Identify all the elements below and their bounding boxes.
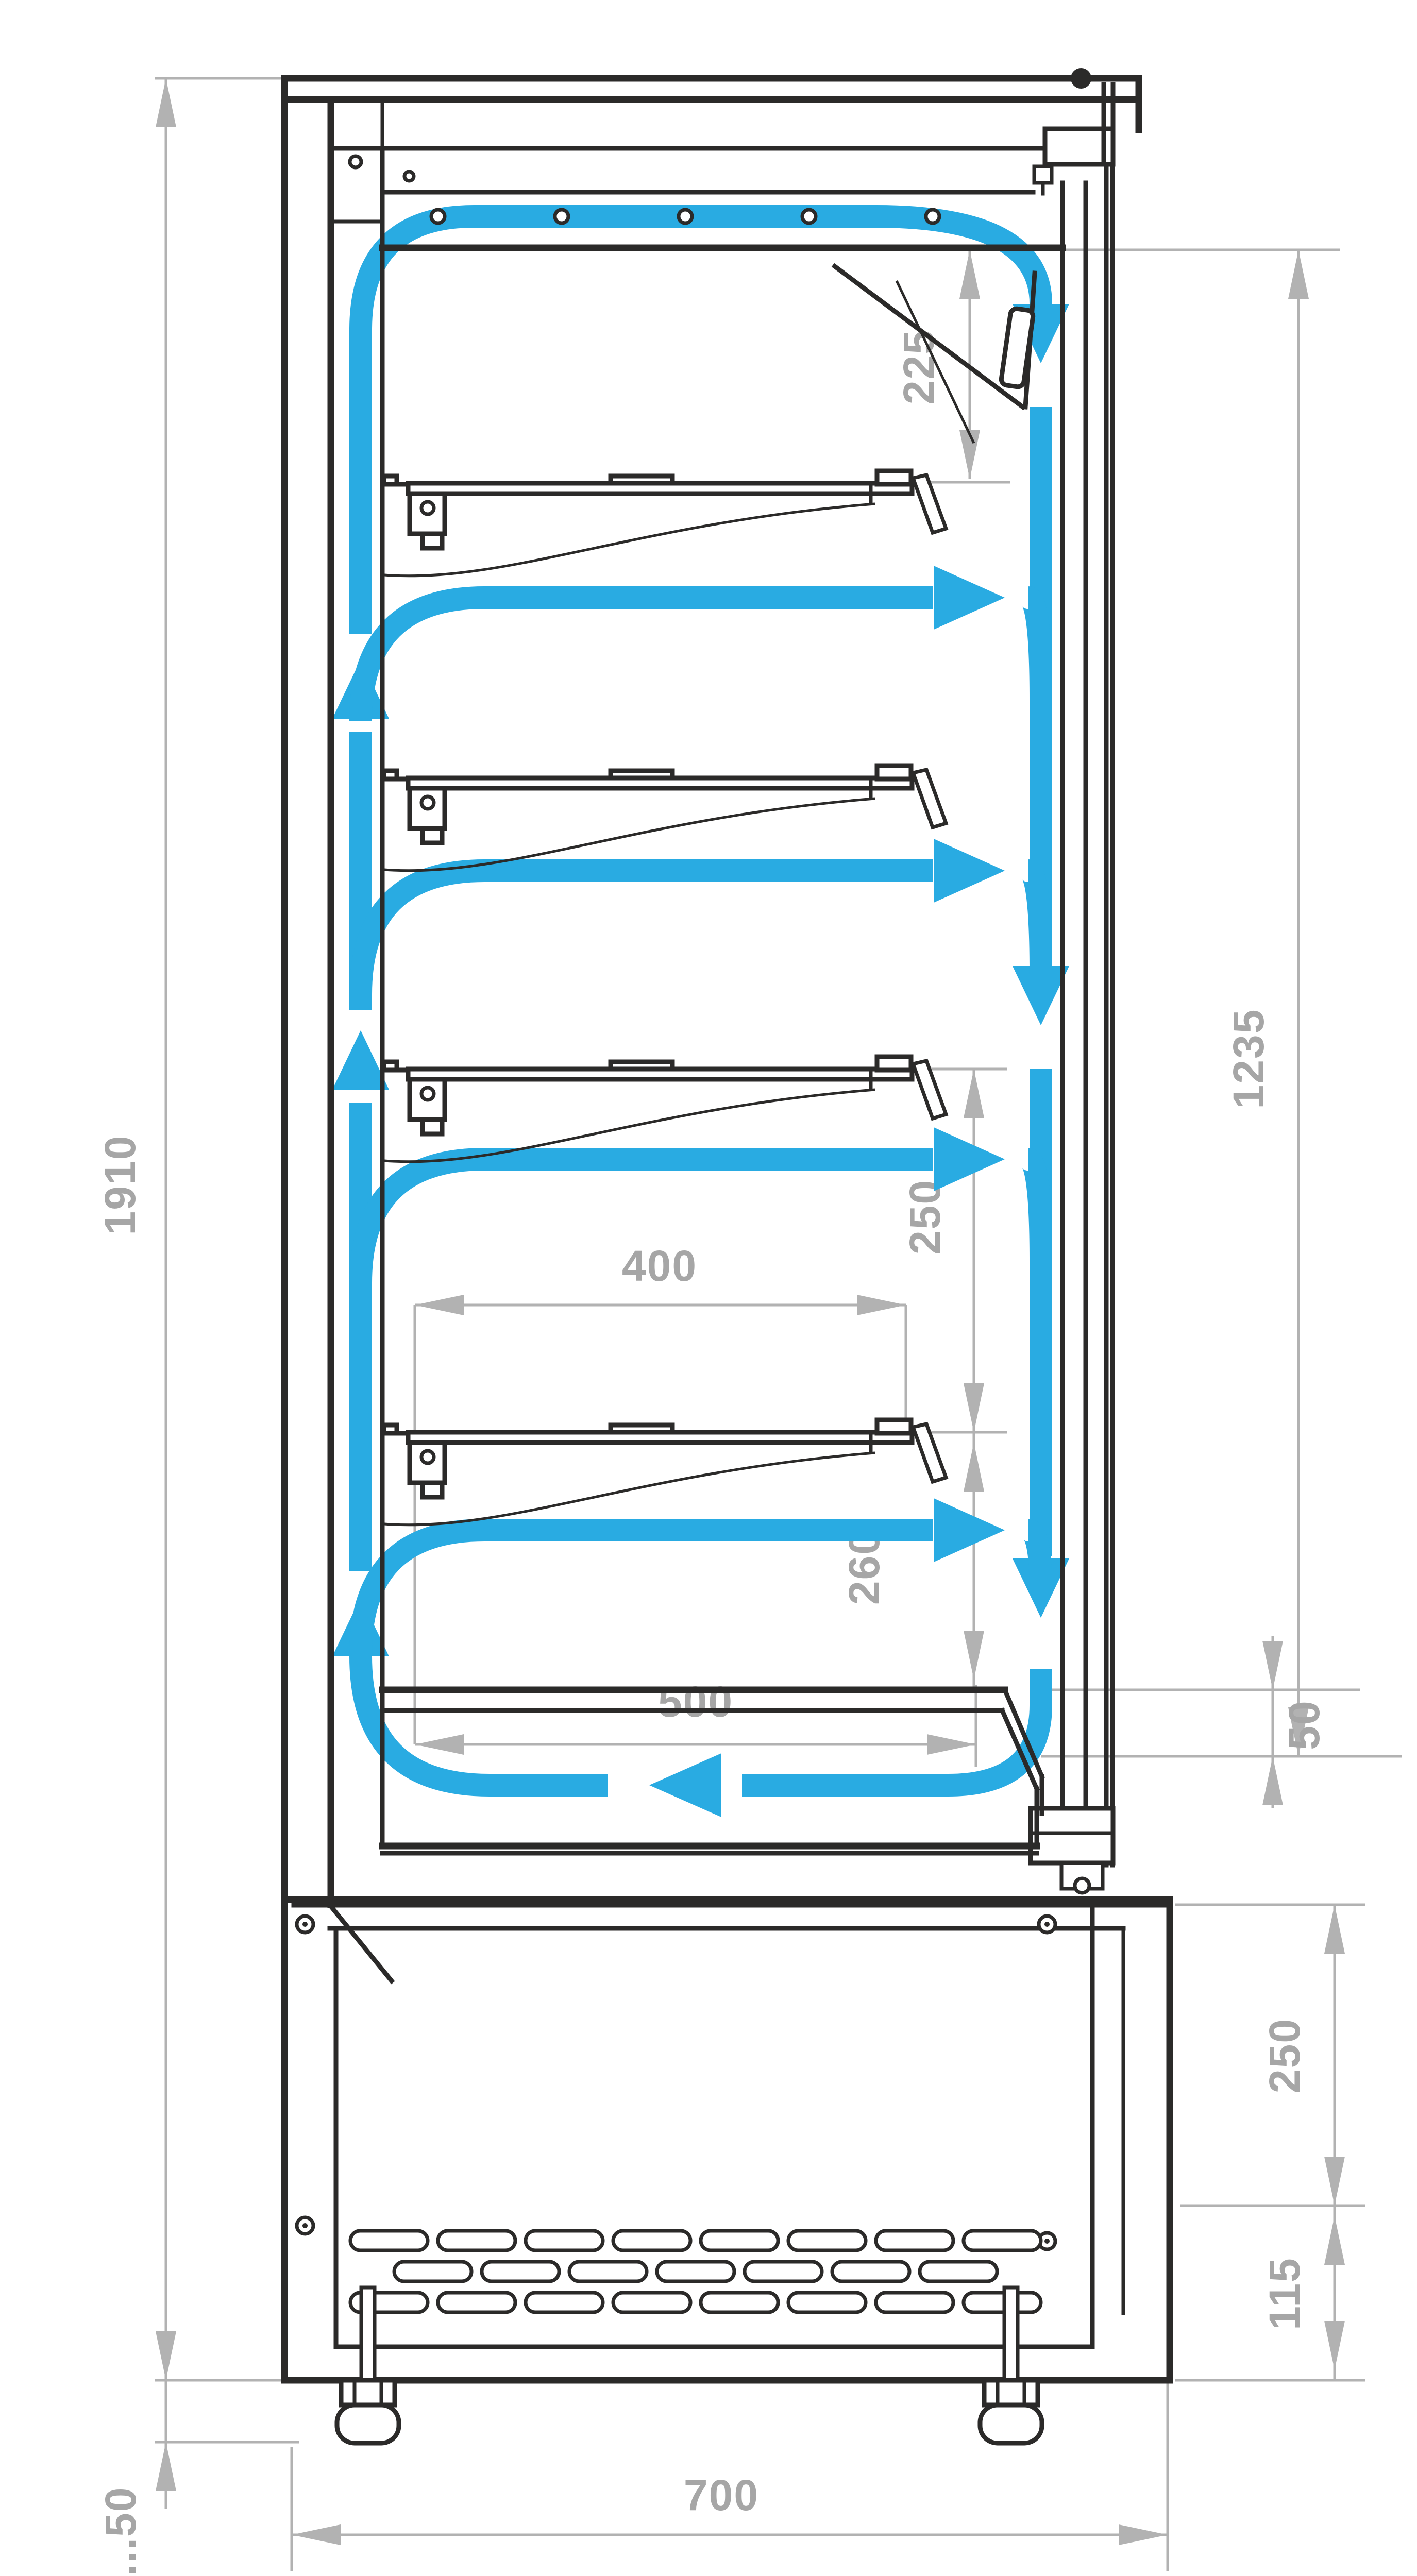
shelf-2 <box>384 766 946 871</box>
screw-icon <box>297 1916 313 1933</box>
shelf-4 <box>384 1420 946 1525</box>
dim-inlet-gap-label: 50 <box>1280 1700 1328 1750</box>
return-airflow-band <box>361 1656 608 1785</box>
screw-icon <box>297 2217 313 2234</box>
machine-base <box>284 1900 1170 2443</box>
airflow-arrows <box>332 216 1069 1817</box>
dim-foot-zone-label: 115 <box>1260 2257 1309 2330</box>
shelf-airflow-2 <box>361 839 1041 994</box>
door-top-frame <box>1034 68 1113 194</box>
dim-deck-depth-label: 500 <box>658 1677 733 1726</box>
dim-overall-depth-label: 700 <box>684 2471 759 2519</box>
dim-overall-height-label: 1910 <box>96 1135 144 1235</box>
right-arrow-icon <box>934 1127 1005 1191</box>
right-arrow-icon <box>934 839 1005 903</box>
technical-diagram-page: 1910 30...50 700 225 1235 50 <box>0 0 1417 2576</box>
dim-base-height-label: 250 <box>1260 2018 1309 2093</box>
door-bottom-frame <box>1031 1808 1113 1863</box>
shelf-3 <box>384 1057 946 1162</box>
right-arrow-icon <box>934 566 1005 630</box>
vent-grille <box>350 2231 1041 2312</box>
shelf-1 <box>384 471 946 576</box>
left-arrow-icon <box>649 1753 721 1817</box>
right-arrow-icon <box>934 1498 1005 1562</box>
dim-shelf-gap-upper-label: 250 <box>901 1179 949 1255</box>
cabinet-cross-section-diagram: 1910 30...50 700 225 1235 50 <box>0 0 1417 2576</box>
dim-door-zone-label: 1235 <box>1224 1009 1273 1109</box>
screw-icon <box>1039 1916 1055 1933</box>
dimension-annotations: 1910 30...50 700 225 1235 50 <box>96 78 1402 2576</box>
shelf-airflow-1 <box>361 566 1041 721</box>
dim-shelf-depth-label: 400 <box>622 1242 697 1290</box>
dim-foot-range-label: 30...50 <box>96 2487 145 2576</box>
